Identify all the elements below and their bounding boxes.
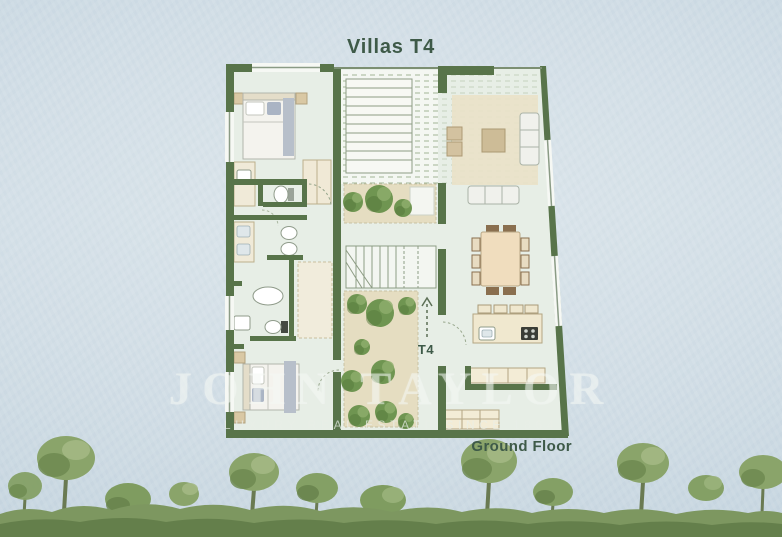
- armchair: [447, 127, 462, 156]
- bar-stool: [494, 305, 507, 313]
- tree: [37, 436, 95, 512]
- double-sink-vanity: [234, 222, 254, 262]
- coffee-table: [482, 129, 505, 152]
- dressing-closet: [298, 262, 332, 338]
- planter-bush: [365, 185, 393, 213]
- tree: [617, 443, 669, 515]
- dining-chair: [503, 287, 516, 295]
- cooktop: [521, 327, 538, 340]
- courtyard-tree: [398, 413, 414, 429]
- tree: [169, 482, 199, 506]
- courtyard-tree: [347, 294, 367, 314]
- courtyard-tree: [366, 299, 394, 327]
- unit-label: T4: [408, 342, 444, 357]
- staircase-upper: [346, 79, 412, 173]
- courtyard-tree: [354, 339, 370, 355]
- floor-plan-drawing: [0, 0, 782, 537]
- scene: Villas T4 T4 Ground Floor JOHN TAYLOR LU…: [0, 0, 782, 537]
- nightstand: [234, 412, 245, 423]
- dining-chair: [472, 255, 480, 268]
- planter-bush: [394, 199, 412, 217]
- bathtub: [253, 287, 283, 305]
- staircase-central: [346, 246, 436, 288]
- dining-chair: [521, 238, 529, 251]
- dining-chair: [521, 255, 529, 268]
- page-title: Villas T4: [0, 36, 782, 59]
- kitchen: [473, 305, 542, 343]
- bar-stool: [510, 305, 523, 313]
- dining-chair: [486, 287, 499, 295]
- wardrobe: [303, 160, 331, 204]
- bed: [243, 361, 299, 413]
- tree-line: [0, 436, 782, 537]
- bar-stool: [525, 305, 538, 313]
- tree: [688, 475, 724, 501]
- wall-spine: [333, 68, 341, 360]
- bar-stool: [478, 305, 491, 313]
- bed: [243, 93, 295, 159]
- toilet: [274, 186, 294, 203]
- dining-area: [472, 225, 529, 295]
- sofa-right: [520, 113, 539, 165]
- wall-bottom: [226, 430, 568, 438]
- sink: [234, 316, 250, 330]
- utility-cabinet: [444, 410, 499, 429]
- nightstand: [296, 93, 307, 104]
- courtyard-garden: [341, 291, 418, 429]
- kitchen-sink: [479, 327, 495, 340]
- planter-strip: [343, 184, 436, 223]
- tree: [229, 453, 279, 515]
- nightstand: [234, 352, 245, 363]
- utility-counter: [470, 368, 545, 383]
- dining-table: [481, 232, 520, 286]
- courtyard-tree: [348, 405, 370, 427]
- planter-bush: [343, 192, 363, 212]
- courtyard-tree: [341, 370, 363, 392]
- tree: [739, 455, 782, 514]
- dining-chair: [472, 238, 480, 251]
- toilet: [265, 321, 288, 334]
- dining-chair: [472, 272, 480, 285]
- floor-plan: [225, 63, 569, 438]
- dining-chair: [521, 272, 529, 285]
- sofa-bottom: [468, 186, 519, 204]
- floor-label: Ground Floor: [410, 438, 572, 455]
- courtyard-tree: [398, 297, 416, 315]
- courtyard-tree: [371, 360, 395, 384]
- courtyard-tree: [375, 401, 397, 423]
